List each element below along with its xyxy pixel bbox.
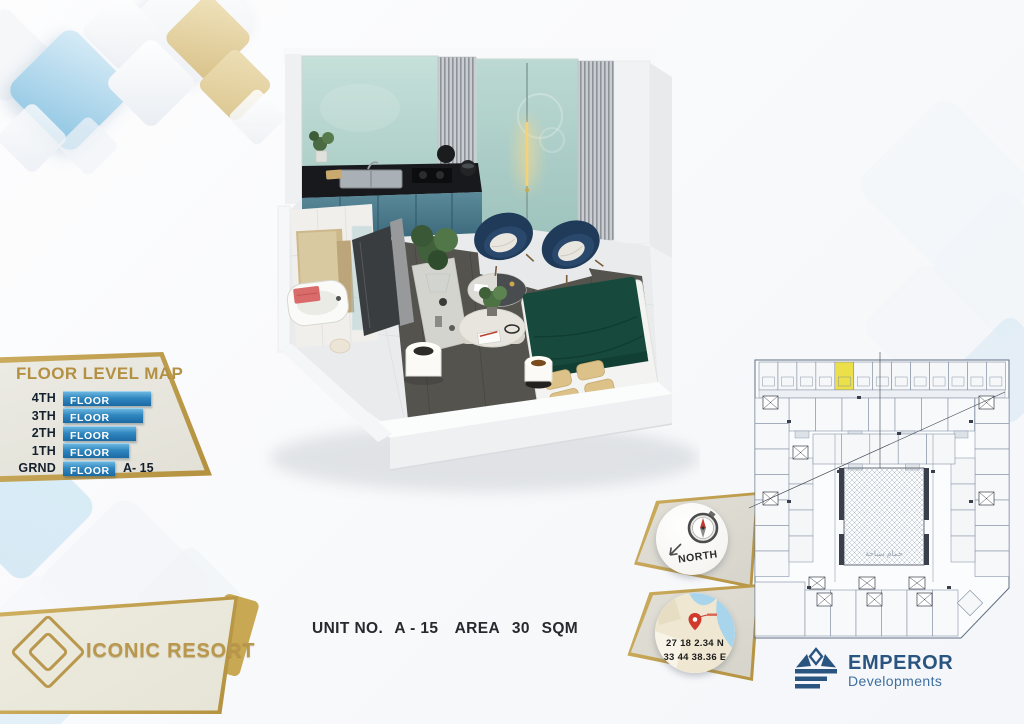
compass-circle: NORTH xyxy=(656,503,728,575)
developer-name: EMPEROR xyxy=(848,653,953,673)
floor-row: 4TH FLOOR xyxy=(14,390,183,406)
floor-bar-label: FLOOR xyxy=(63,447,110,459)
floor-bar-label: FLOOR xyxy=(63,395,110,407)
site-plan-drawing: حمام سباحة xyxy=(747,350,1017,650)
floor-level-rows: 4TH FLOOR 3TH FLOOR 2TH FLOOR 1TH FLOOR … xyxy=(14,390,183,476)
emperor-crown-icon xyxy=(792,647,840,693)
floor-level-map-title: FLOOR LEVEL MAP xyxy=(16,364,183,384)
unit-no-value: A - 15 xyxy=(394,620,438,637)
resort-name: ICONIC RESORT xyxy=(86,640,255,663)
floor-level-map-panel: FLOOR LEVEL MAP 4TH FLOOR 3TH FLOOR 2TH … xyxy=(0,352,212,482)
floor-level-label: 2TH xyxy=(14,426,56,440)
floor-row: 1TH FLOOR xyxy=(14,443,183,459)
pool-label: حمام سباحة xyxy=(865,549,903,558)
floor-bar: FLOOR xyxy=(63,426,136,441)
stove xyxy=(412,168,452,183)
floor-bar: FLOOR xyxy=(63,408,143,423)
coordinate-lat: 27 18 2.34 N xyxy=(655,637,735,651)
floor-level-label: 1TH xyxy=(14,444,56,458)
unit-info-line: UNIT NO. A - 15 AREA 30 SQM xyxy=(312,620,590,638)
compass-panel: NORTH xyxy=(634,492,764,590)
floor-level-label: GRND xyxy=(14,461,56,475)
coordinate-lng: 33 44 38.36 E xyxy=(655,651,735,665)
unit-no-label: UNIT NO. xyxy=(312,620,383,637)
site-plan: حمام سباحة xyxy=(747,350,1017,650)
poster: FLOOR LEVEL MAP 4TH FLOOR 3TH FLOOR 2TH … xyxy=(0,0,1024,724)
floor-row: 2TH FLOOR xyxy=(14,425,183,441)
stool xyxy=(330,339,350,353)
plan-geometry xyxy=(749,352,1009,638)
counter-appliance xyxy=(437,145,455,163)
coordinates: 27 18 2.34 N 33 44 38.36 E xyxy=(655,637,735,665)
floor-bar: FLOOR xyxy=(63,461,115,476)
unit-number-badge: A- 15 xyxy=(123,461,154,475)
developer-logo: EMPEROR Developments xyxy=(792,647,953,693)
floor-row: 3TH FLOOR xyxy=(14,408,183,424)
floor-row: GRND FLOOR A- 15 xyxy=(14,460,183,476)
floor-level-label: 3TH xyxy=(14,409,56,423)
compass-icon xyxy=(656,503,728,575)
resort-logo-panel: ICONIC RESORT xyxy=(0,596,256,714)
developer-subtitle: Developments xyxy=(848,673,953,689)
floor-level-label: 4TH xyxy=(14,391,56,405)
floor-lamp-2 xyxy=(525,356,552,389)
floor-bar: FLOOR xyxy=(63,443,129,458)
location-panel: 27 18 2.34 N 33 44 38.36 E xyxy=(626,582,764,684)
floor-lamp-1 xyxy=(404,342,444,385)
cutting-board xyxy=(326,169,343,179)
area-value: 30 xyxy=(512,620,530,637)
glass-door xyxy=(476,59,578,236)
map-circle: 27 18 2.34 N 33 44 38.36 E xyxy=(655,593,735,673)
area-label: AREA xyxy=(455,620,501,637)
floor-bar-label: FLOOR xyxy=(63,465,110,477)
floor-bar: FLOOR xyxy=(63,391,151,406)
floor-bar-label: FLOOR xyxy=(63,412,110,424)
area-unit: SQM xyxy=(542,620,579,637)
floor-bar-label: FLOOR xyxy=(63,430,110,442)
apartment-3d-render xyxy=(240,28,700,588)
bathtub xyxy=(286,279,351,328)
